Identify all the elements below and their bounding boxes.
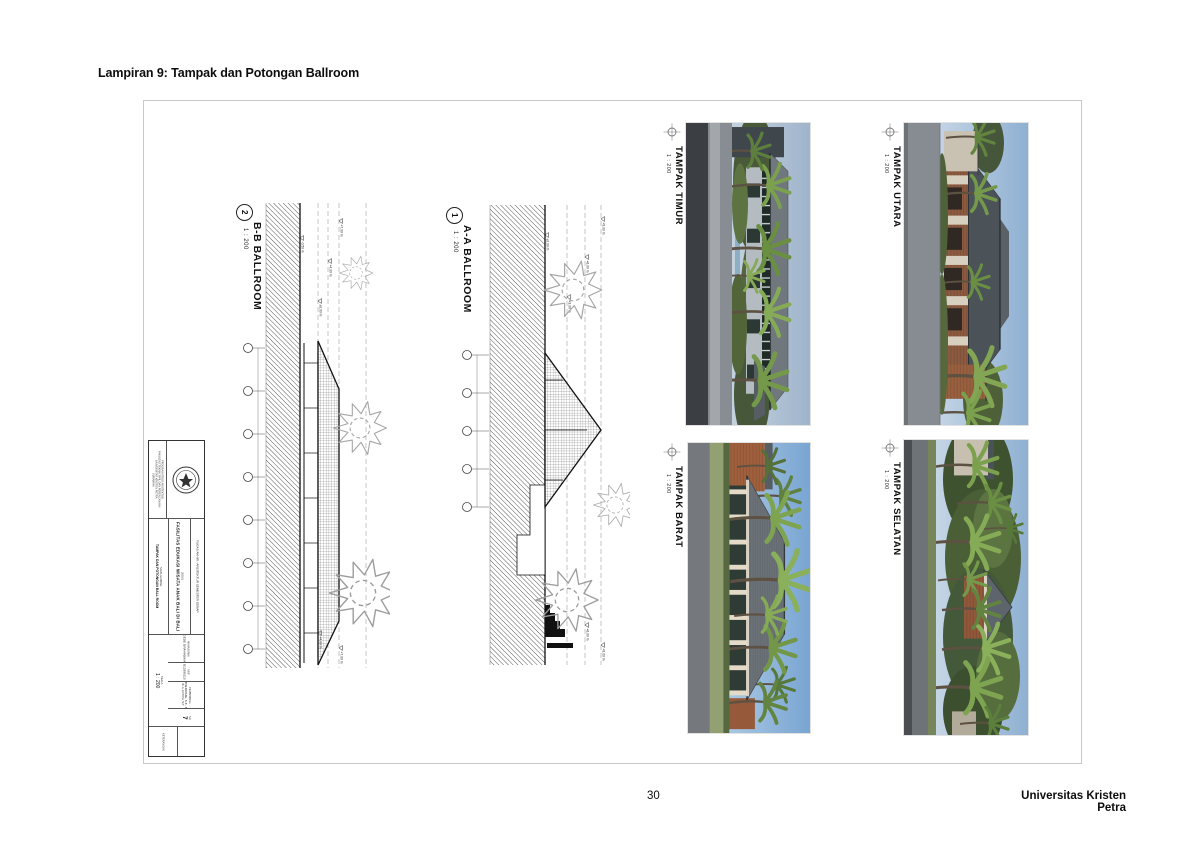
svg-text:+7.00 m: +7.00 m xyxy=(340,652,344,664)
section-aa-number: 1 xyxy=(450,213,459,217)
university-seal xyxy=(166,441,204,518)
section-bb-drawing: +7.00 m +4.00 m ±0.00 m -0.50 m +4.00 m … xyxy=(240,203,390,668)
render-tampak-barat xyxy=(688,443,810,733)
elevation-barat-title: TAMPAK BARAT xyxy=(673,466,684,548)
title-block-logo-row: PROGRAM STUDI ARSITEKTUR FAKULTAS TEKNIK… xyxy=(149,441,204,519)
render-ground xyxy=(904,123,940,425)
institution-text: PROGRAM STUDI ARSITEKTUR FAKULTAS TEKNIK… xyxy=(149,441,166,518)
render-tampak-timur xyxy=(686,123,810,425)
keterangan-empty-cell xyxy=(177,727,204,756)
university-seal-icon xyxy=(171,465,201,495)
title-block: PROGRAM STUDI ARSITEKTUR FAKULTAS TEKNIK… xyxy=(148,440,205,757)
sheet-number-label: NO xyxy=(188,716,191,720)
grid-bubbles xyxy=(463,351,490,512)
keterangan-cell: KETERANGAN xyxy=(149,727,177,756)
judul-cell: JUDUL FASILITAS EDUKASI WISATA ANAK BALI… xyxy=(168,519,190,634)
title-block-data-row: SKALA 1 : 200 MAHASISWA PUTU GEDE GRAHAD… xyxy=(149,635,204,727)
section-aa-drawing: +9.00 m +6.00 m +3.00 m ±0.00 m +6.00 m … xyxy=(460,205,630,665)
mahasiswa-cell: MAHASISWA PUTU GEDE GRAHADIKA S. P.N. xyxy=(168,635,204,663)
elevation-selatan-scale: 1 : 200 xyxy=(883,470,889,490)
identity-stack: MAHASISWA PUTU GEDE GRAHADIKA S. P.N. NR… xyxy=(168,635,204,726)
crosshair-target-icon xyxy=(880,122,900,142)
skala-label: SKALA xyxy=(160,676,163,684)
elevation-utara-title: TAMPAK UTARA xyxy=(891,146,902,228)
svg-text:+4.00 m: +4.00 m xyxy=(329,265,333,277)
page-number: 30 xyxy=(647,790,660,802)
elevation-timur-title: TAMPAK TIMUR xyxy=(673,146,684,225)
elevation-selatan-title: TAMPAK SELATAN xyxy=(891,462,902,556)
post-cut xyxy=(547,643,573,648)
document-page: Lampiran 9: Tampak dan Potongan Ballroom… xyxy=(0,0,1193,844)
nrp-cell: NRP B12990110 xyxy=(168,663,204,682)
elevation-timur-scale: 1 : 200 xyxy=(665,154,671,174)
svg-text:+6.00 m: +6.00 m xyxy=(586,629,590,641)
svg-text:-0.50 m: -0.50 m xyxy=(301,242,305,253)
sheet-number-cell: NO 7 xyxy=(168,709,204,726)
render-foreground-band xyxy=(904,440,912,735)
page-title: Lampiran 9: Tampak dan Potongan Ballroom xyxy=(98,66,359,80)
ground-hatch xyxy=(490,205,545,665)
sheet-number-value: 7 xyxy=(181,716,188,720)
crosshair-target-icon xyxy=(662,442,682,462)
render-tampak-utara xyxy=(904,123,1028,425)
ground-hatch xyxy=(266,203,300,668)
render-foreground-band xyxy=(904,123,908,425)
svg-text:+9.00 m: +9.00 m xyxy=(602,649,606,661)
pembimbing-cell: PEMBIMBING ALTREROSJE, S.T., M.T. IR. A.… xyxy=(168,682,204,709)
nama-gambar-label: NAMA GAMBAR xyxy=(159,567,162,586)
svg-text:±0.00 m: ±0.00 m xyxy=(319,305,323,317)
mahasiswa-label: MAHASISWA xyxy=(187,641,190,657)
render-foreground-band xyxy=(686,123,708,425)
render-walkway xyxy=(710,123,720,425)
nrp-label: NRP xyxy=(187,669,190,674)
svg-text:+4.00 m: +4.00 m xyxy=(319,637,323,649)
pembimbing-label: PEMBIMBING xyxy=(188,687,191,704)
skala-cell: SKALA 1 : 200 xyxy=(149,635,168,726)
tugas-akhir-text: TUGAS AKHIR - ARSITEKTUR SEMESTER GENAP xyxy=(196,540,200,613)
crosshair-target-icon xyxy=(880,438,900,458)
section-aa-scale: 1 : 200 xyxy=(452,231,458,253)
footer-institution: Universitas Kristen Petra xyxy=(1000,790,1126,814)
render-tampak-selatan xyxy=(904,440,1028,735)
svg-text:±0.00 m: ±0.00 m xyxy=(546,239,550,251)
title-block-judul-row: NAMA GAMBAR TAMPAK DAN POTONGAN BALL ROO… xyxy=(149,519,204,635)
institution-line: PROGRAM STUDI ARSITEKTUR xyxy=(161,460,164,499)
judul-label: JUDUL xyxy=(181,572,184,580)
keterangan-label: KETERANGAN xyxy=(162,733,165,751)
render-lawn xyxy=(708,443,724,733)
keterangan-row: KETERANGAN xyxy=(149,727,204,756)
svg-text:+9.00 m: +9.00 m xyxy=(602,223,606,235)
svg-text:+6.00 m: +6.00 m xyxy=(586,261,590,273)
grid-bubbles xyxy=(244,344,266,654)
render-foreground-band xyxy=(688,443,710,733)
tugas-akhir-header: TUGAS AKHIR - ARSITEKTUR SEMESTER GENAP xyxy=(190,519,204,634)
elevation-barat-scale: 1 : 200 xyxy=(665,474,671,494)
nama-gambar-cell: NAMA GAMBAR TAMPAK DAN POTONGAN BALL ROO… xyxy=(149,519,168,634)
svg-text:+7.00 m: +7.00 m xyxy=(340,225,344,237)
section-building xyxy=(304,341,339,665)
crosshair-target-icon xyxy=(662,122,682,142)
roof-cut xyxy=(318,341,339,665)
elevation-utara-scale: 1 : 200 xyxy=(883,154,889,174)
